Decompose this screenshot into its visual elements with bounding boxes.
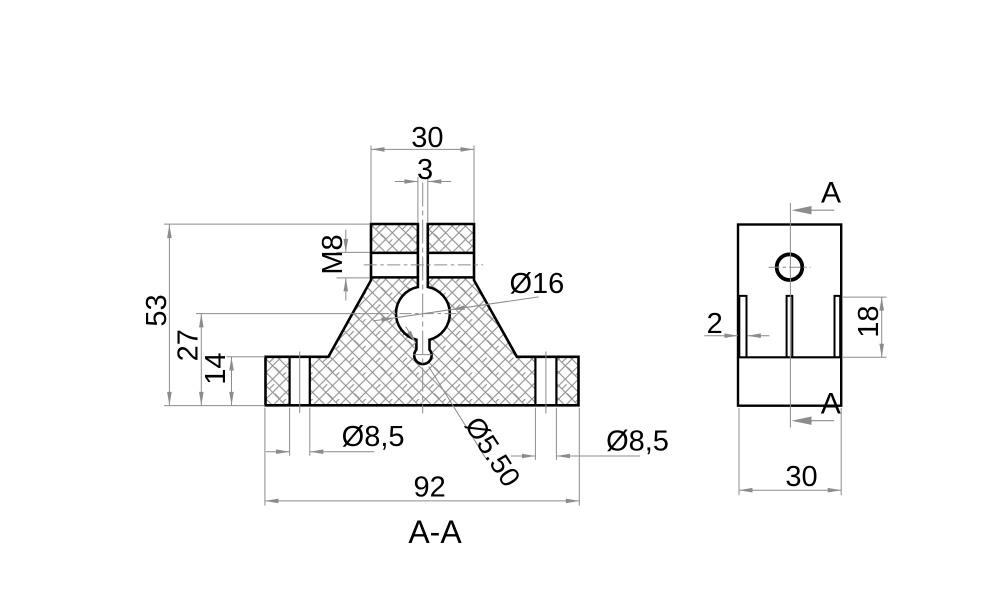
svg-text:92: 92 xyxy=(413,472,445,504)
svg-text:2: 2 xyxy=(707,308,723,340)
svg-text:A: A xyxy=(821,177,841,210)
svg-text:M8: M8 xyxy=(317,234,349,274)
svg-text:Ø5.50: Ø5.50 xyxy=(459,411,527,492)
svg-text:3: 3 xyxy=(417,154,433,186)
svg-text:53: 53 xyxy=(141,294,173,326)
svg-text:30: 30 xyxy=(785,461,817,493)
svg-text:A-A: A-A xyxy=(408,514,462,550)
svg-text:Ø16: Ø16 xyxy=(509,268,564,300)
svg-text:Ø8,5: Ø8,5 xyxy=(606,426,669,458)
svg-text:Ø8,5: Ø8,5 xyxy=(342,421,405,453)
svg-text:14: 14 xyxy=(200,352,232,384)
svg-text:A: A xyxy=(821,387,841,420)
svg-text:30: 30 xyxy=(411,122,443,154)
svg-text:18: 18 xyxy=(853,305,885,337)
